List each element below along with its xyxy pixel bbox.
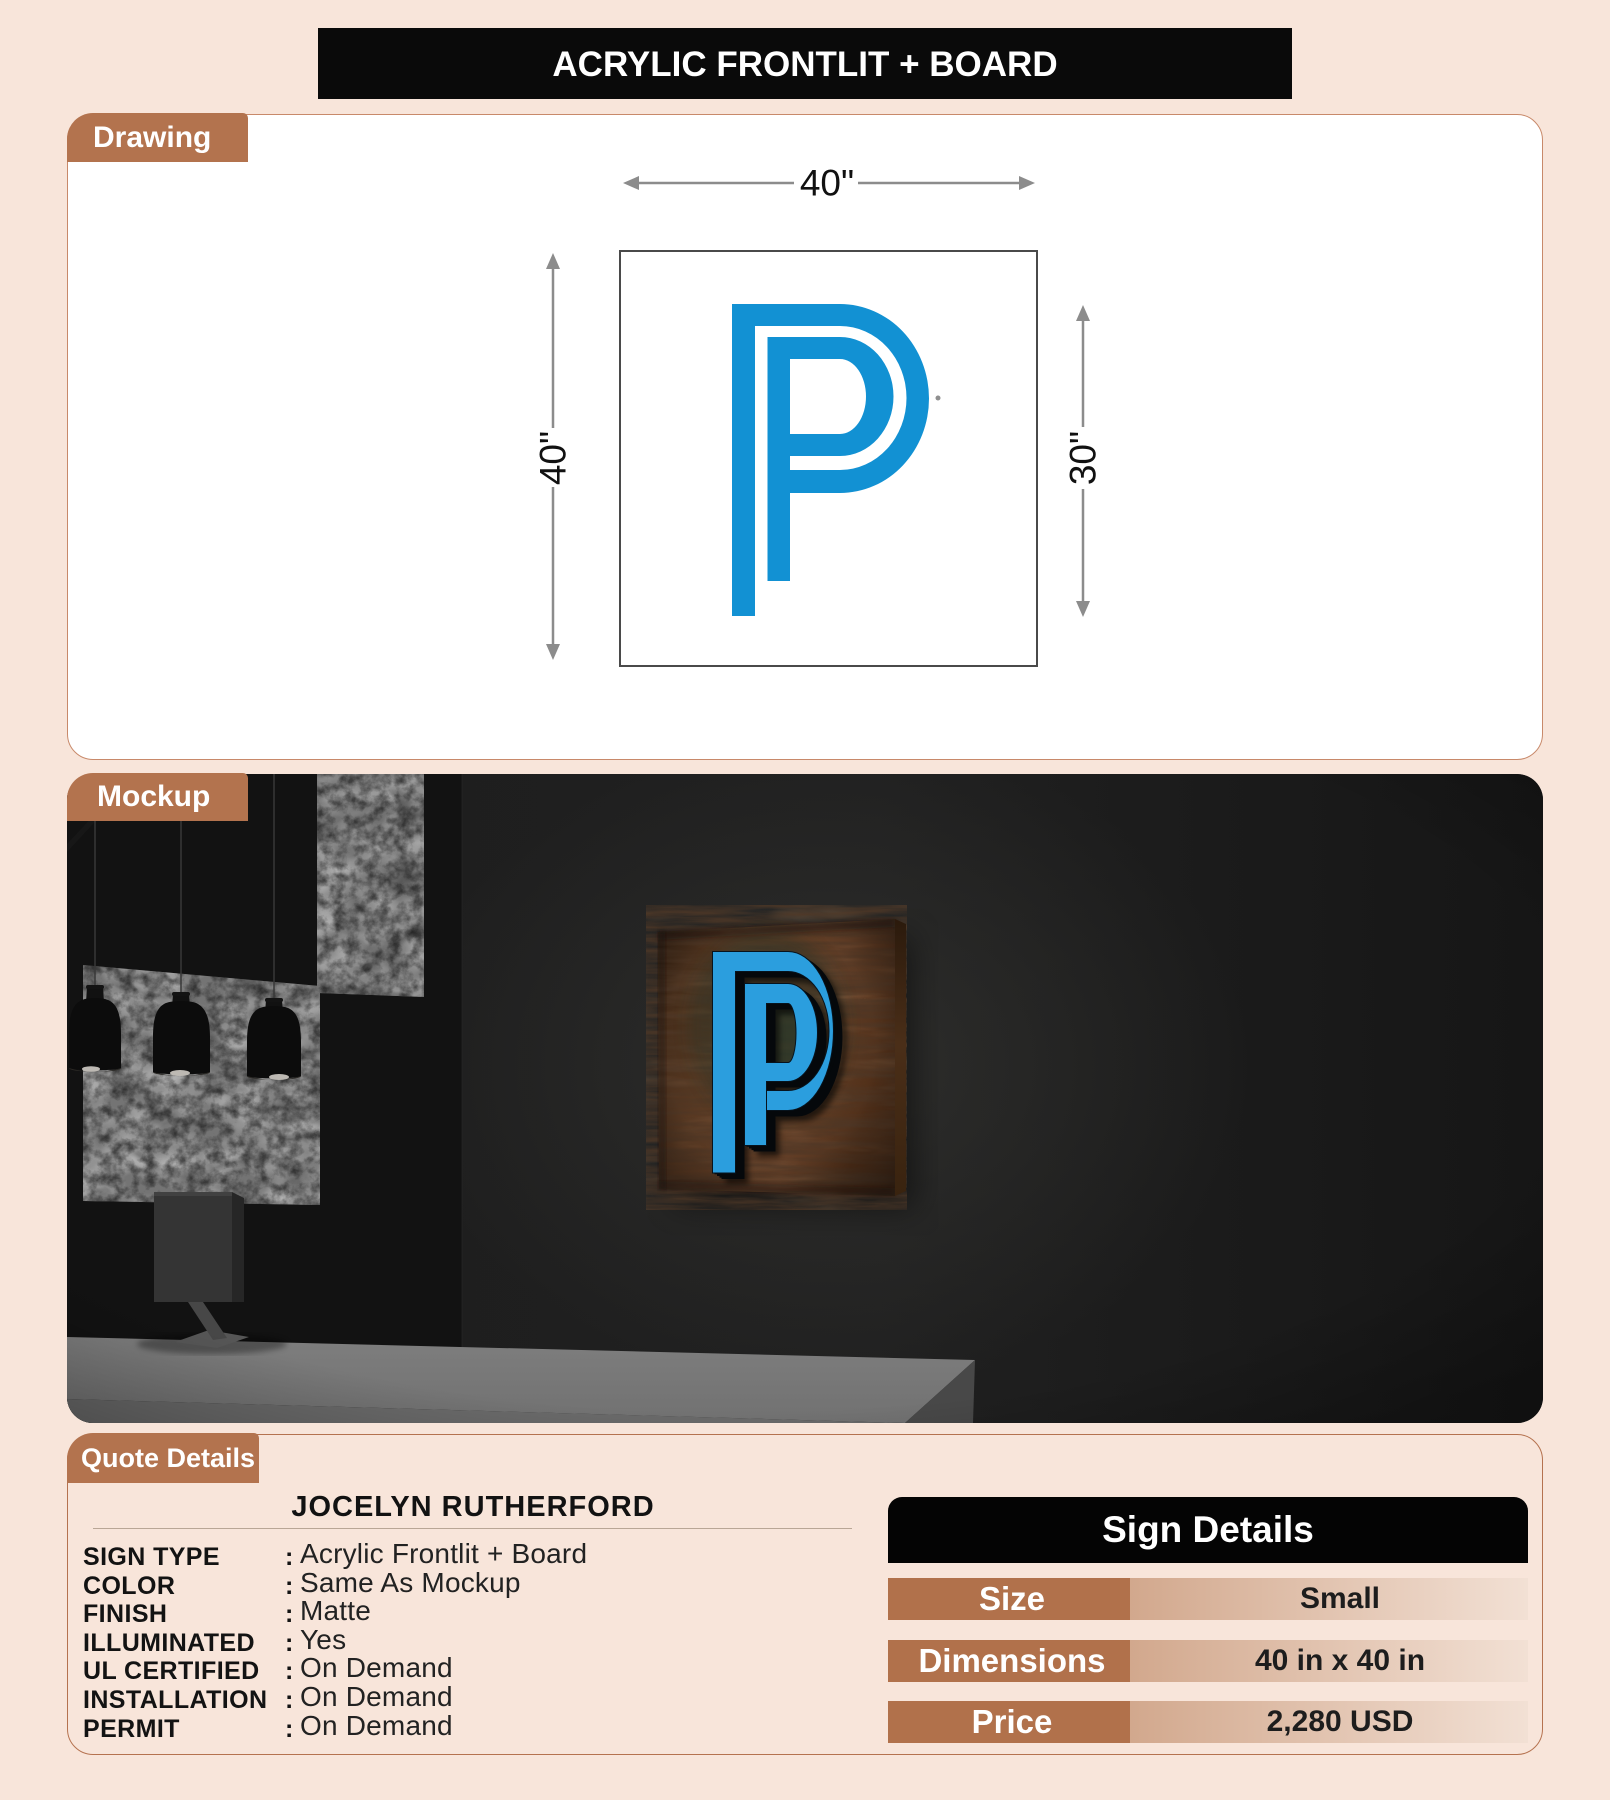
svg-text:40": 40" (533, 431, 574, 485)
svg-text:30": 30" (1063, 431, 1104, 485)
svg-text:40": 40" (800, 163, 854, 204)
